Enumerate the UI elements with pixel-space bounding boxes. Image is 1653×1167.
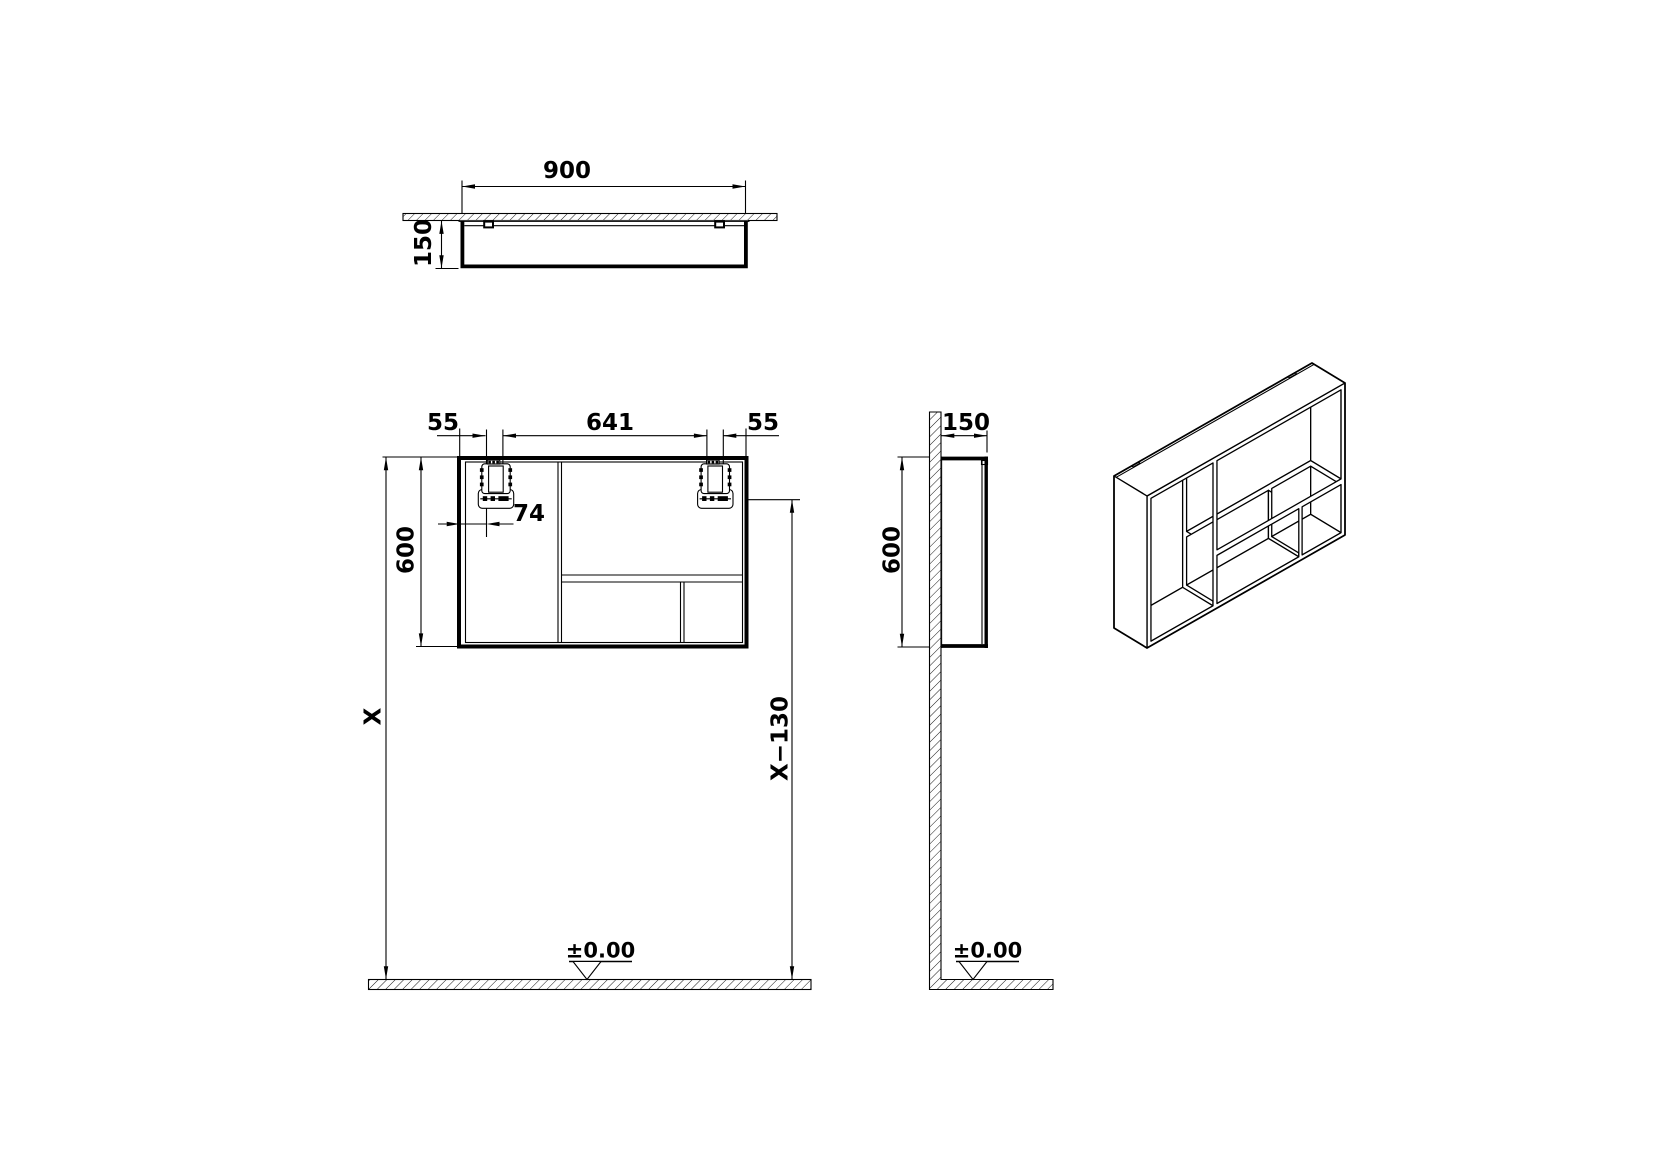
datum-triangle-icon — [573, 962, 601, 980]
dimension-width-900: 900 — [462, 158, 746, 214]
arrow-right-icon — [733, 184, 746, 188]
dim-label-right-offset: 55 — [747, 410, 779, 436]
side-view: 150 600 ±0.00 — [880, 410, 1054, 990]
dim-label-depth: 150 — [411, 219, 437, 267]
dimension-depth-150-side: 150 — [941, 410, 990, 453]
dimension-mount-height-x: X — [361, 457, 389, 980]
mount-clip-left — [484, 222, 493, 228]
technical-drawing-page: 900 150 — [0, 0, 1653, 1167]
wall-section — [403, 214, 777, 221]
arrow-down-icon — [439, 255, 443, 268]
isometric-view — [1114, 363, 1345, 648]
dim-label-hanger-height: X−130 — [768, 696, 794, 781]
dimension-height-600-front: 600 — [383, 457, 459, 647]
top-view: 900 150 — [403, 158, 777, 269]
arrow-up-icon — [439, 221, 443, 234]
dim-label-height-side: 600 — [880, 526, 906, 574]
dim-label-width: 900 — [543, 158, 591, 184]
datum-label-front: ±0.00 — [566, 939, 635, 963]
floor-datum-side: ±0.00 — [953, 939, 1022, 980]
arrow-left-icon — [462, 184, 475, 188]
dim-label-hanger-inset: 74 — [513, 501, 545, 527]
datum-label-side: ±0.00 — [953, 939, 1022, 963]
cabinet-side-outline — [941, 457, 988, 649]
wall-hanger-bracket-left — [478, 460, 513, 508]
datum-triangle-icon — [959, 962, 987, 980]
dimension-height-600-side: 600 — [880, 457, 930, 647]
wall-hanger-bracket-right — [698, 460, 733, 508]
dimension-hanger-height-x130: X−130 — [749, 500, 801, 980]
dim-label-depth-side: 150 — [942, 410, 990, 436]
iso-left-face — [1114, 476, 1147, 648]
floor-datum-front: ±0.00 — [566, 939, 635, 980]
dim-label-height-front: 600 — [394, 526, 420, 574]
shelf-unit-technical-drawing: 900 150 — [0, 0, 1653, 1167]
front-view: 55 641 55 — [361, 410, 812, 990]
dim-label-left-offset: 55 — [427, 410, 459, 436]
dimension-depth-150: 150 — [411, 219, 459, 269]
mount-clip-right — [715, 222, 724, 228]
dim-label-mount-height: X — [361, 707, 387, 725]
floor-section-front — [369, 980, 812, 990]
cabinet-top-outline — [459, 221, 750, 269]
dim-label-hanger-span: 641 — [586, 410, 634, 436]
